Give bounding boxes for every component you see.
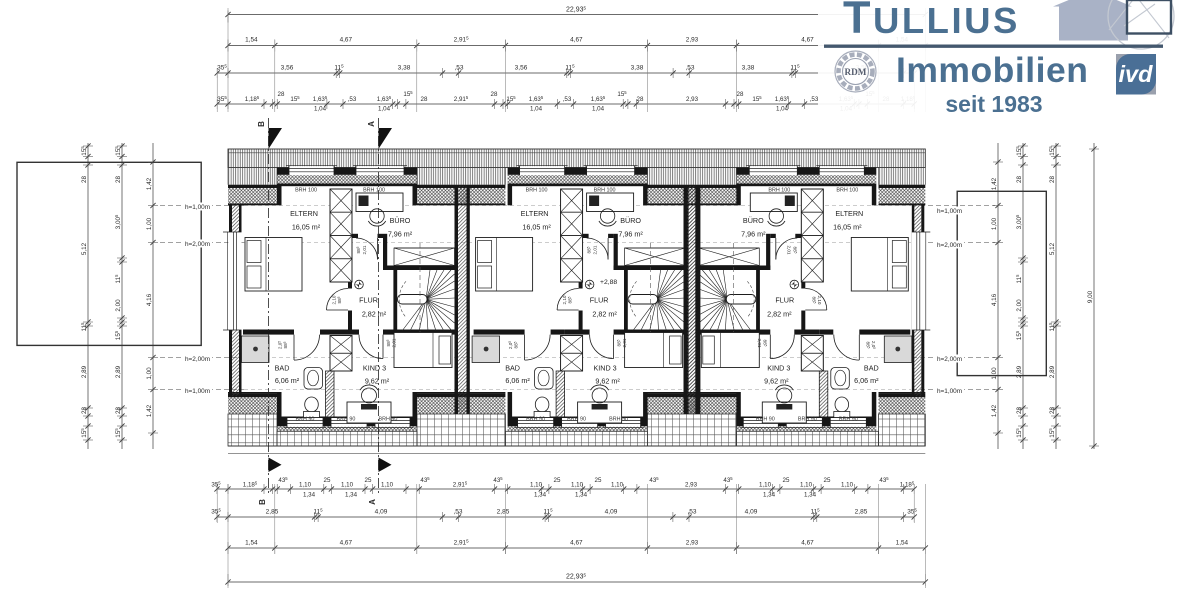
svg-text:2,10: 2,10 [562,295,567,304]
svg-text:1,34: 1,34 [345,492,358,499]
svg-text:2,93: 2,93 [686,96,699,103]
svg-text:2,01: 2,01 [362,245,367,254]
svg-text:3,56: 3,56 [281,65,294,72]
svg-text:A: A [368,499,377,505]
svg-text:1,00: 1,00 [991,367,998,380]
svg-text:1,34: 1,34 [804,492,817,499]
svg-text:1,10: 1,10 [530,482,543,489]
svg-text:h=1,00m: h=1,00m [937,208,962,215]
svg-text:2,10: 2,10 [332,295,337,304]
svg-text:22,935: 22,935 [566,573,587,581]
svg-text:4,16: 4,16 [146,293,153,306]
svg-text:28: 28 [115,176,122,184]
svg-text:BRH 100: BRH 100 [836,188,858,194]
svg-text:BRH 100: BRH 100 [768,188,790,194]
svg-text:2,93: 2,93 [686,37,699,44]
svg-text:ELTERN: ELTERN [835,209,863,218]
svg-text:RDM: RDM [845,67,867,77]
svg-text:BRH 100: BRH 100 [526,188,548,194]
svg-text:2,85: 2,85 [497,509,510,516]
svg-text:h=1,00m: h=1,00m [185,388,210,395]
svg-text:seit 1983: seit 1983 [945,91,1042,117]
svg-text:28: 28 [737,91,744,98]
svg-text:BRH 90: BRH 90 [379,417,398,423]
svg-text:ivd: ivd [1119,61,1154,87]
svg-text:2,01: 2,01 [593,245,598,254]
svg-text:1,10: 1,10 [611,482,624,489]
svg-text:h=2,00m: h=2,00m [937,356,962,363]
svg-text:2,01: 2,01 [392,338,397,347]
svg-text:,53: ,53 [810,96,819,103]
svg-text:7,96 m²: 7,96 m² [388,230,413,239]
svg-text:28: 28 [115,407,122,415]
svg-text:6,06 m²: 6,06 m² [854,376,879,385]
svg-text:28: 28 [637,96,644,103]
svg-text:BAD: BAD [864,364,879,373]
svg-text:BRH 90: BRH 90 [756,417,775,423]
svg-text:1,42: 1,42 [146,404,153,417]
svg-text:1,10: 1,10 [571,482,584,489]
svg-text:1,10: 1,10 [841,482,854,489]
svg-text:BRH 90: BRH 90 [296,417,315,423]
svg-text:2,00: 2,00 [115,299,122,312]
svg-text:ELTERN: ELTERN [521,209,549,218]
svg-text:BRH 90: BRH 90 [567,417,586,423]
svg-text:BRH 90: BRH 90 [337,417,356,423]
svg-text:FLUR: FLUR [775,296,794,305]
svg-text:25: 25 [365,477,372,484]
svg-text:BRH 90: BRH 90 [609,417,628,423]
svg-text:9,62 m²: 9,62 m² [365,377,390,386]
svg-text:BRH 90: BRH 90 [839,417,858,423]
svg-text:2,89: 2,89 [1016,365,1023,378]
svg-text:1,10: 1,10 [299,482,312,489]
svg-text:3,38: 3,38 [742,65,755,72]
svg-text:FLUR: FLUR [359,296,378,305]
svg-text:,53: ,53 [453,509,462,516]
svg-text:28: 28 [81,407,88,415]
svg-text:28: 28 [81,176,88,184]
svg-text:1,34: 1,34 [575,492,588,499]
svg-text:28: 28 [491,91,498,98]
svg-text:1,42: 1,42 [991,177,998,190]
svg-text:BÜRO: BÜRO [743,216,764,225]
svg-text:7,96 m²: 7,96 m² [618,230,643,239]
svg-text:1,54: 1,54 [896,540,909,547]
svg-text:A: A [367,121,376,127]
svg-text:KIND 3: KIND 3 [363,364,386,373]
svg-text:1,34: 1,34 [303,492,316,499]
svg-text:2,10: 2,10 [817,296,822,305]
svg-text:B: B [257,121,266,127]
svg-text:4,67: 4,67 [340,37,353,44]
svg-text:BAD: BAD [505,364,520,373]
svg-text:1,10: 1,10 [800,482,813,489]
svg-text:6,06 m²: 6,06 m² [505,376,530,385]
svg-text:28: 28 [278,91,285,98]
svg-text:1,54: 1,54 [245,37,258,44]
svg-text:BRH 100: BRH 100 [594,188,616,194]
svg-text:2,93: 2,93 [686,540,699,547]
svg-text:1,00: 1,00 [146,217,153,230]
svg-text:1,10: 1,10 [341,482,354,489]
svg-text:28: 28 [1016,176,1023,184]
svg-text:BÜRO: BÜRO [620,216,641,225]
svg-text:2,85: 2,85 [855,509,868,516]
svg-text:1,04: 1,04 [592,106,605,113]
svg-text:,53: ,53 [687,509,696,516]
svg-text:2,85: 2,85 [266,509,279,516]
svg-text:1,00: 1,00 [146,367,153,380]
svg-text:KIND 3: KIND 3 [767,364,790,373]
svg-text:B: B [258,499,267,505]
svg-text:h=2,00m: h=2,00m [185,356,210,363]
svg-text:2,89: 2,89 [1049,365,1056,378]
svg-text:FLUR: FLUR [590,296,609,305]
svg-text:1,04: 1,04 [378,106,391,113]
svg-text:4,16: 4,16 [991,293,998,306]
svg-text:,53: ,53 [685,65,694,72]
svg-text:25: 25 [824,477,831,484]
svg-text:1,34: 1,34 [763,492,776,499]
svg-text:2,82 m²: 2,82 m² [592,310,617,319]
svg-text:22,935: 22,935 [566,6,587,14]
svg-text:2,01: 2,01 [786,246,791,255]
svg-text:,53: ,53 [563,96,572,103]
svg-text:BRH 100: BRH 100 [363,188,385,194]
svg-text:h=1,00m: h=1,00m [185,204,210,211]
svg-text:TULLIUS: TULLIUS [843,0,1020,43]
svg-text:KIND 3: KIND 3 [594,364,617,373]
svg-text:28: 28 [1049,176,1056,184]
svg-text:9,62 m²: 9,62 m² [595,377,620,386]
svg-text:ELTERN: ELTERN [290,209,318,218]
svg-text:4,67: 4,67 [570,540,583,547]
svg-text:h=2,00m: h=2,00m [937,242,962,249]
svg-text:BRH 100: BRH 100 [295,188,317,194]
svg-text:16,05 m²: 16,05 m² [522,223,551,232]
svg-text:4,67: 4,67 [570,37,583,44]
svg-text:4,09: 4,09 [605,509,618,516]
svg-text:,53: ,53 [348,96,357,103]
svg-text:1,42: 1,42 [146,177,153,190]
svg-text:3,38: 3,38 [631,65,644,72]
svg-text:5,12: 5,12 [1049,242,1056,255]
svg-text:BRH 90: BRH 90 [798,417,817,423]
svg-text:25: 25 [324,477,331,484]
svg-text:25: 25 [783,477,790,484]
svg-text:BÜRO: BÜRO [390,216,411,225]
svg-text:4,67: 4,67 [340,540,353,547]
svg-text:28: 28 [1016,407,1023,415]
svg-text:2,01: 2,01 [622,338,627,347]
svg-text:28: 28 [421,96,428,103]
svg-text:1,04: 1,04 [776,106,789,113]
svg-text:25: 25 [595,477,602,484]
svg-text:25: 25 [554,477,561,484]
svg-text:2,89: 2,89 [115,365,122,378]
svg-text:9,00: 9,00 [1087,290,1094,303]
svg-text:4,09: 4,09 [745,509,758,516]
svg-text:+2,88: +2,88 [600,279,617,286]
svg-text:6,06 m²: 6,06 m² [275,376,300,385]
svg-text:h=1,00m: h=1,00m [937,388,962,395]
svg-text:,53: ,53 [454,65,463,72]
svg-text:1,42: 1,42 [991,404,998,417]
svg-text:2,82 m²: 2,82 m² [362,310,387,319]
svg-text:7,96 m²: 7,96 m² [741,230,766,239]
svg-text:2,89: 2,89 [81,365,88,378]
svg-text:2,82 m²: 2,82 m² [767,310,792,319]
svg-text:4,67: 4,67 [801,37,814,44]
svg-text:1,00: 1,00 [991,217,998,230]
svg-text:3,38: 3,38 [398,65,411,72]
svg-text:BAD: BAD [275,364,290,373]
svg-text:16,05 m²: 16,05 m² [292,223,321,232]
svg-text:1,54: 1,54 [245,540,258,547]
svg-text:4,09: 4,09 [375,509,388,516]
svg-text:2,00: 2,00 [1016,299,1023,312]
svg-text:1,04: 1,04 [314,106,327,113]
svg-text:9,62 m²: 9,62 m² [764,377,789,386]
svg-text:16,05 m²: 16,05 m² [833,223,862,232]
svg-text:1,10: 1,10 [381,482,394,489]
svg-text:1,10: 1,10 [759,482,772,489]
svg-text:2,93: 2,93 [685,482,698,489]
svg-text:5,12: 5,12 [81,242,88,255]
svg-text:BRH 90: BRH 90 [526,417,545,423]
svg-text:28: 28 [1049,407,1056,415]
svg-text:3,56: 3,56 [515,65,528,72]
svg-text:2,01: 2,01 [757,339,762,348]
svg-text:Immobilien: Immobilien [896,50,1088,90]
svg-text:1,04: 1,04 [530,106,543,113]
svg-text:h=2,00m: h=2,00m [185,241,210,248]
svg-text:4,67: 4,67 [801,540,814,547]
svg-text:1,34: 1,34 [534,492,547,499]
